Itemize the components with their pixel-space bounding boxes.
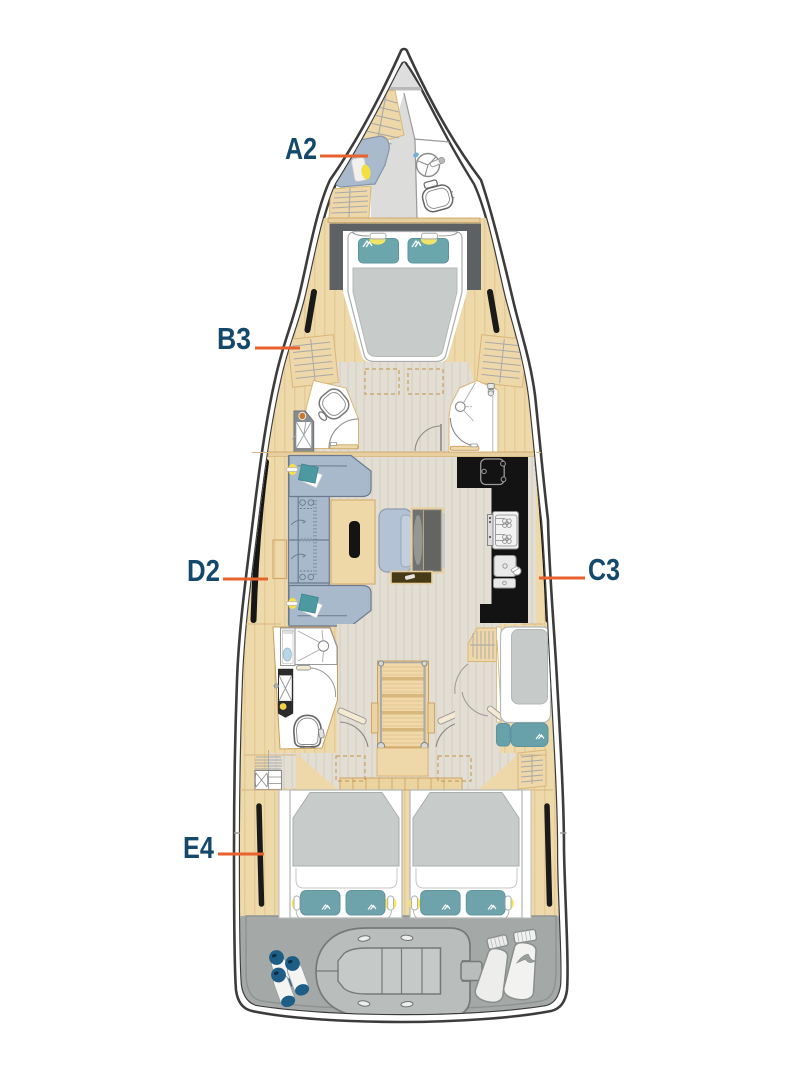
svg-text:C3: C3 (588, 552, 620, 587)
svg-text:D2: D2 (187, 553, 220, 588)
svg-text:B3: B3 (217, 321, 251, 356)
svg-text:A2: A2 (285, 131, 317, 166)
svg-text:E4: E4 (183, 830, 215, 865)
